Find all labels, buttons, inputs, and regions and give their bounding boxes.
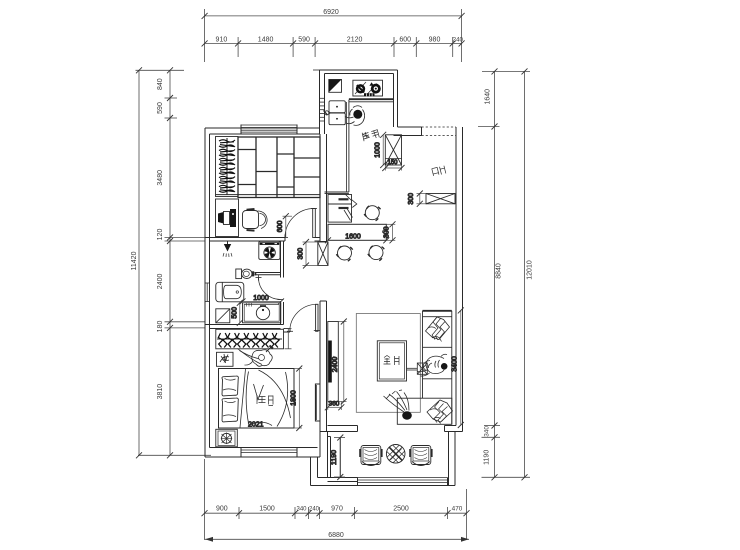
svg-text:6920: 6920 — [323, 9, 339, 16]
svg-text:1190: 1190 — [484, 450, 491, 465]
svg-text:300: 300 — [384, 226, 391, 238]
svg-text:2400: 2400 — [332, 357, 339, 373]
svg-text:900: 900 — [216, 506, 228, 513]
svg-text:840: 840 — [157, 78, 164, 90]
svg-text:1190: 1190 — [331, 450, 338, 465]
svg-text:500: 500 — [232, 307, 239, 319]
svg-text:2400: 2400 — [157, 274, 164, 290]
svg-text:3810: 3810 — [157, 384, 164, 400]
svg-text:8840: 8840 — [496, 263, 503, 279]
svg-text:11420: 11420 — [131, 251, 138, 270]
svg-text:1500: 1500 — [259, 506, 275, 513]
svg-text:590: 590 — [157, 102, 164, 114]
svg-text:2120: 2120 — [347, 36, 363, 43]
svg-text:300: 300 — [408, 193, 415, 205]
svg-text:1000: 1000 — [253, 295, 269, 302]
svg-text:12010: 12010 — [527, 260, 534, 280]
svg-text:1480: 1480 — [258, 36, 274, 43]
svg-text:2021: 2021 — [248, 421, 264, 428]
svg-text:3400: 3400 — [451, 356, 458, 372]
svg-text:120: 120 — [157, 229, 164, 241]
svg-text:980: 980 — [429, 36, 441, 43]
svg-text:600: 600 — [277, 221, 284, 233]
svg-text:150: 150 — [387, 160, 398, 166]
svg-text:3480: 3480 — [157, 170, 164, 186]
svg-text:240: 240 — [453, 36, 464, 43]
svg-text:600: 600 — [399, 36, 411, 43]
svg-text:180: 180 — [157, 321, 164, 333]
svg-text:1800: 1800 — [291, 390, 298, 406]
svg-text:590: 590 — [298, 36, 310, 43]
svg-text:1000: 1000 — [375, 142, 382, 158]
svg-text:2500: 2500 — [393, 506, 409, 513]
svg-text:340: 340 — [484, 426, 491, 437]
svg-text:470: 470 — [452, 506, 463, 513]
svg-text:300: 300 — [297, 248, 304, 260]
svg-text:1600: 1600 — [345, 234, 361, 241]
svg-text:910: 910 — [216, 36, 228, 43]
svg-text:340: 340 — [296, 507, 307, 513]
svg-text:1640: 1640 — [485, 89, 492, 105]
svg-text:970: 970 — [331, 506, 343, 513]
svg-text:240: 240 — [309, 507, 320, 513]
svg-text:6880: 6880 — [328, 532, 344, 539]
svg-text:360: 360 — [329, 400, 340, 407]
